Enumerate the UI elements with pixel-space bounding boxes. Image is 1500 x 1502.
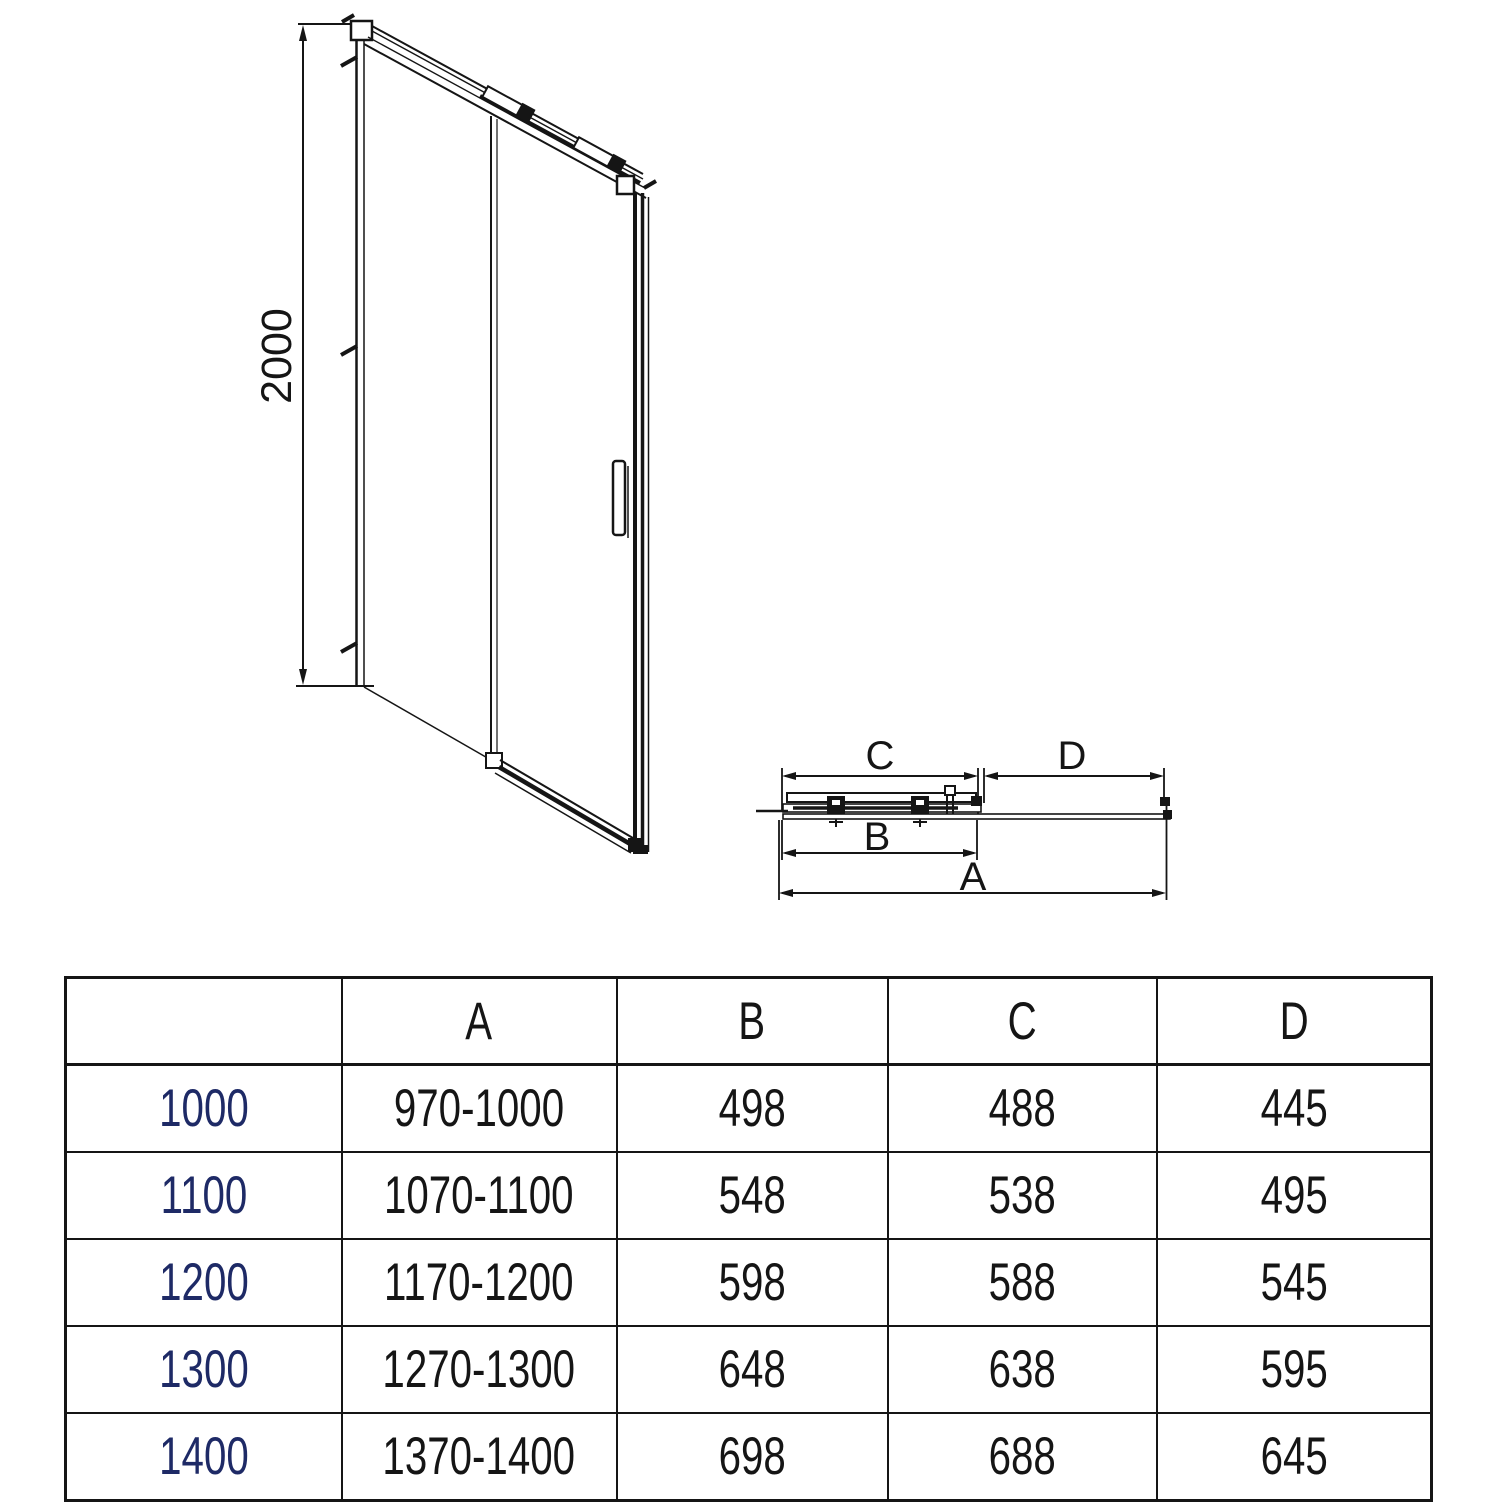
dim-c: C <box>782 734 978 780</box>
column-header-d: D <box>1157 978 1432 1065</box>
column-header-c: C <box>888 978 1157 1065</box>
top-rail <box>364 26 656 198</box>
table-row: 1000 970-1000 498 488 445 <box>66 1065 1432 1153</box>
column-header-b: B <box>617 978 888 1065</box>
cell-a: 1070-1100 <box>342 1152 617 1239</box>
cell-a: 1370-1400 <box>342 1413 617 1501</box>
cell-d: 545 <box>1157 1239 1432 1326</box>
cell-size: 1000 <box>66 1065 342 1153</box>
cell-b: 598 <box>617 1239 888 1326</box>
height-dimension-label: 2000 <box>253 308 301 404</box>
dim-b: B <box>782 815 977 859</box>
cell-a: 970-1000 <box>342 1065 617 1153</box>
cell-b: 648 <box>617 1326 888 1413</box>
wall-bracket <box>341 346 357 355</box>
left-wall-profile <box>341 15 374 686</box>
bottom-rail <box>364 687 648 854</box>
cell-size: 1200 <box>66 1239 342 1326</box>
roller-carriage <box>573 136 627 175</box>
panel-edge <box>491 116 497 762</box>
cell-b: 698 <box>617 1413 888 1501</box>
cell-size: 1300 <box>66 1326 342 1413</box>
table-row: 1100 1070-1100 548 538 495 <box>66 1152 1432 1239</box>
table-header-row: A B C D <box>66 978 1432 1065</box>
cell-b: 548 <box>617 1152 888 1239</box>
cell-d: 645 <box>1157 1413 1432 1501</box>
table-row: 1400 1370-1400 698 688 645 <box>66 1413 1432 1501</box>
dim-b-label: B <box>864 815 891 859</box>
dim-a-label: A <box>960 855 987 899</box>
dimensions-table: A B C D 1000 970-1000 498 488 445 1100 1… <box>64 976 1433 1502</box>
cell-d: 495 <box>1157 1152 1432 1239</box>
wall-bracket <box>341 643 357 652</box>
wall-profile-end <box>1160 797 1170 806</box>
cell-size: 1400 <box>66 1413 342 1501</box>
cell-c: 588 <box>888 1239 1157 1326</box>
wall-bracket <box>341 57 357 66</box>
cell-size: 1100 <box>66 1152 342 1239</box>
cell-b: 498 <box>617 1065 888 1153</box>
dim-c-label: C <box>866 734 895 778</box>
dim-d-label: D <box>1058 734 1087 778</box>
dim-a: A <box>779 855 1166 899</box>
cell-a: 1270-1300 <box>342 1326 617 1413</box>
cell-c: 488 <box>888 1065 1157 1153</box>
dim-d: D <box>984 734 1164 780</box>
table-row: 1300 1270-1300 648 638 595 <box>66 1326 1432 1413</box>
cell-d: 445 <box>1157 1065 1432 1153</box>
technical-drawing: 2000 <box>0 0 1500 965</box>
column-header-size <box>66 978 342 1065</box>
cell-a: 1170-1200 <box>342 1239 617 1326</box>
front-view-drawing: 2000 <box>253 15 656 854</box>
cell-c: 538 <box>888 1152 1157 1239</box>
cell-d: 595 <box>1157 1326 1432 1413</box>
table-row: 1200 1170-1200 598 588 545 <box>66 1239 1432 1326</box>
plan-view-drawing: C D <box>756 734 1172 900</box>
cell-c: 688 <box>888 1413 1157 1501</box>
cell-c: 638 <box>888 1326 1157 1413</box>
column-header-a: A <box>342 978 617 1065</box>
door-handle <box>613 461 628 538</box>
door-stile <box>635 193 649 852</box>
